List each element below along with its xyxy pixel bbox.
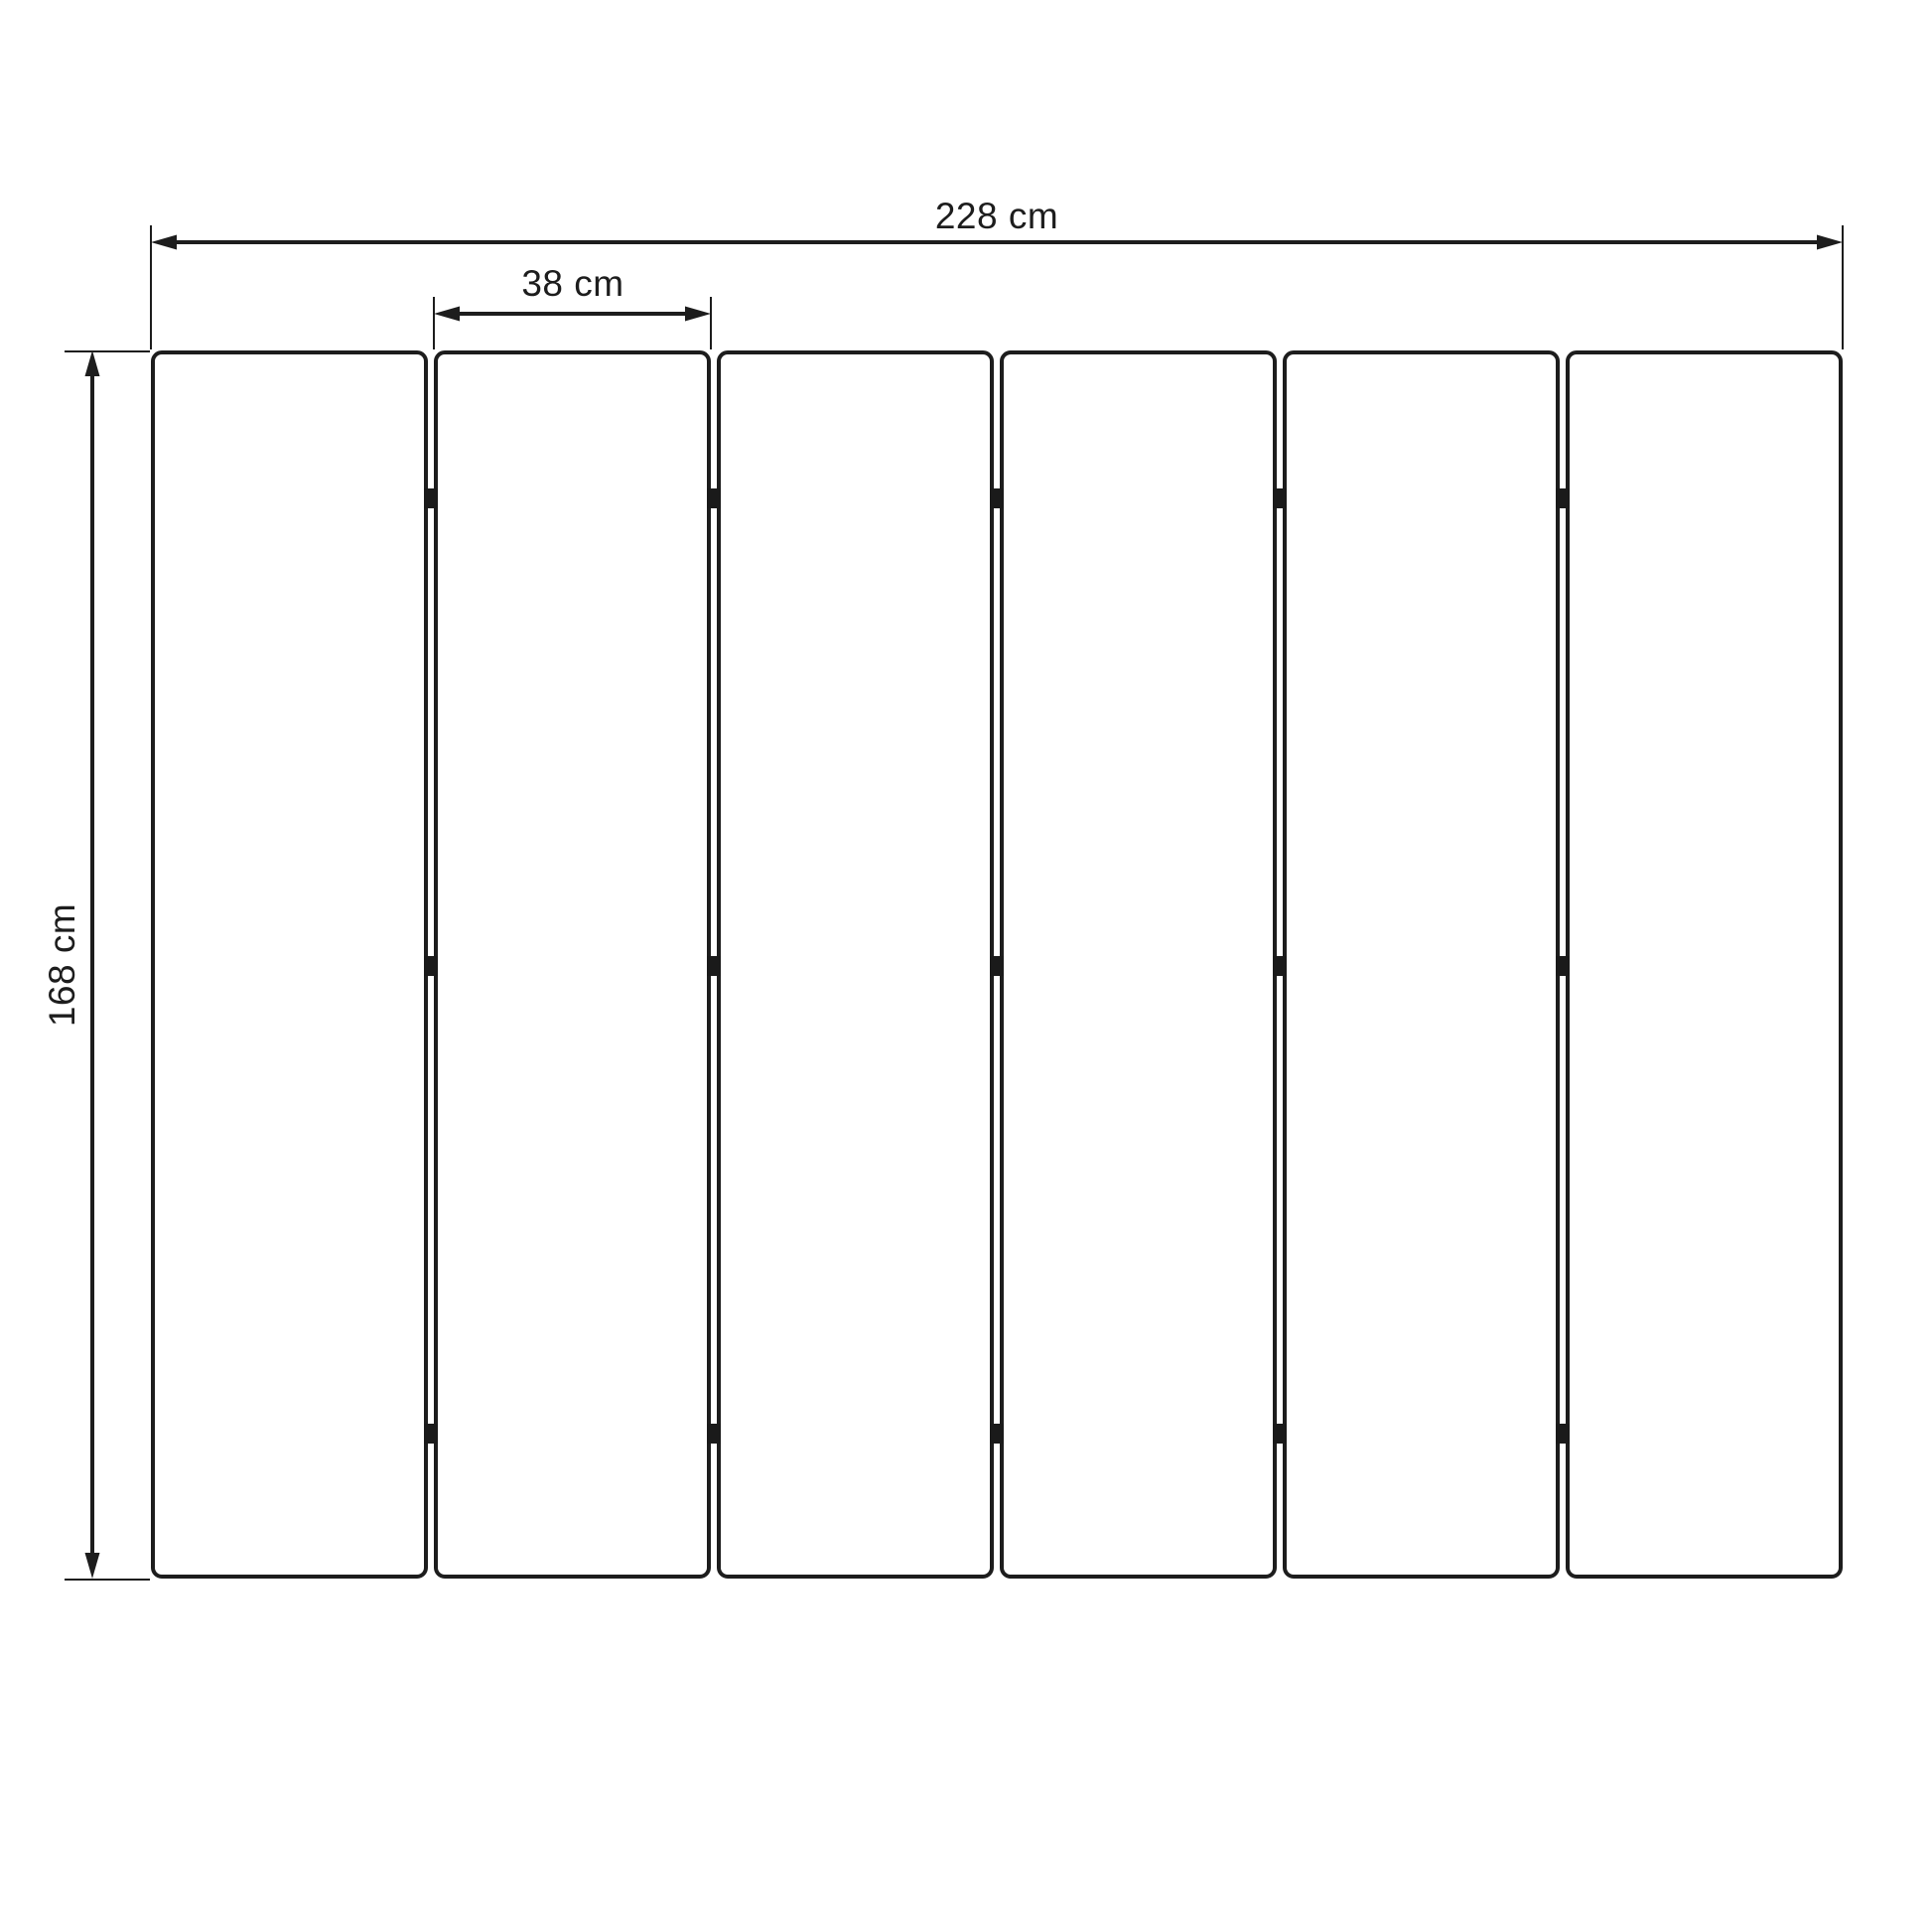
hinge	[1273, 488, 1287, 508]
panel-1	[153, 352, 426, 1577]
panel-2	[436, 352, 709, 1577]
hinge	[990, 956, 1004, 976]
hinge	[707, 1424, 721, 1444]
dimension-diagram: 228 cm 38 cm 168 cm	[0, 0, 1932, 1932]
hinge	[1556, 1424, 1570, 1444]
hinge	[424, 488, 438, 508]
hinge	[1273, 1424, 1287, 1444]
panel-width-label: 38 cm	[521, 263, 623, 304]
hinge	[1273, 956, 1287, 976]
height-label: 168 cm	[42, 903, 82, 1027]
arrowhead-right-icon	[685, 307, 711, 322]
diagram-canvas: 228 cm 38 cm 168 cm	[0, 0, 1932, 1932]
arrowhead-down-icon	[85, 1553, 100, 1579]
arrowhead-right-icon	[1817, 235, 1843, 250]
hinge	[990, 1424, 1004, 1444]
panel-5	[1285, 352, 1558, 1577]
hinge	[424, 956, 438, 976]
hinge	[990, 488, 1004, 508]
hinge	[707, 956, 721, 976]
hinge	[707, 488, 721, 508]
hinge	[1556, 956, 1570, 976]
total-width-label: 228 cm	[935, 196, 1058, 236]
panel-4	[1002, 352, 1275, 1577]
arrowhead-up-icon	[85, 350, 100, 376]
arrowhead-left-icon	[151, 235, 177, 250]
arrowhead-left-icon	[434, 307, 460, 322]
panel-3	[719, 352, 992, 1577]
hinge	[1556, 488, 1570, 508]
panel-6	[1568, 352, 1841, 1577]
hinge	[424, 1424, 438, 1444]
